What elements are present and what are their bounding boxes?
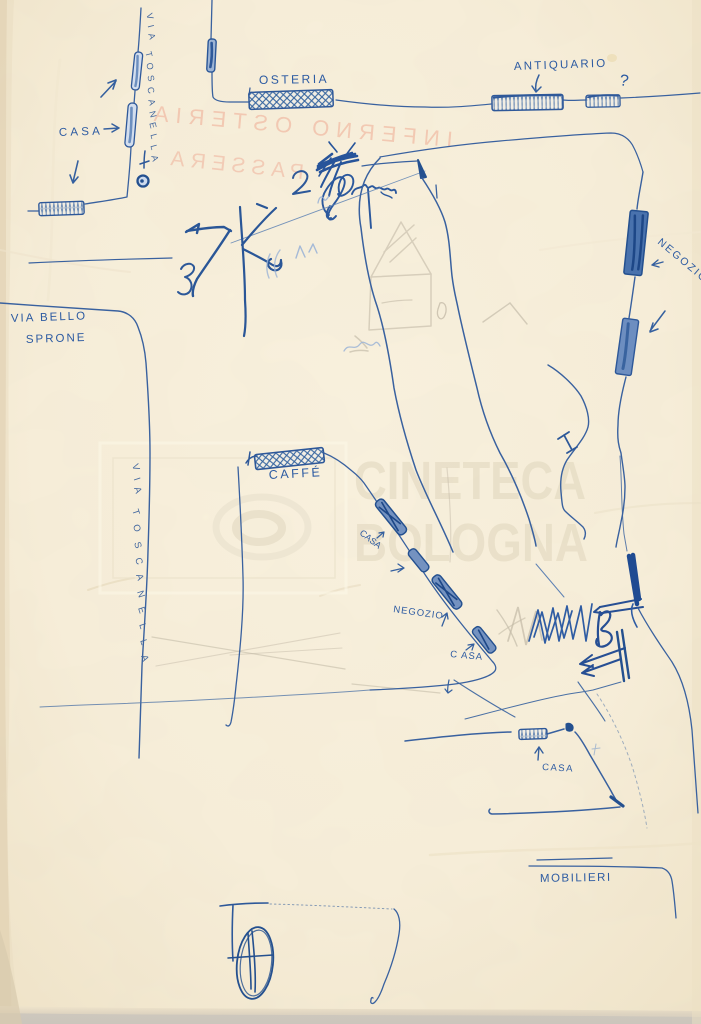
svg-text:SPRONE: SPRONE bbox=[26, 332, 87, 346]
svg-text:CASA: CASA bbox=[542, 762, 574, 775]
svg-text:CINETECA: CINETECA bbox=[354, 451, 586, 511]
svg-text:CAFFÉ: CAFFÉ bbox=[268, 464, 322, 482]
svg-text:MOBILIERI: MOBILIERI bbox=[540, 872, 612, 885]
svg-text:CASA: CASA bbox=[59, 125, 104, 139]
svg-text:OSTERIA: OSTERIA bbox=[259, 72, 329, 87]
